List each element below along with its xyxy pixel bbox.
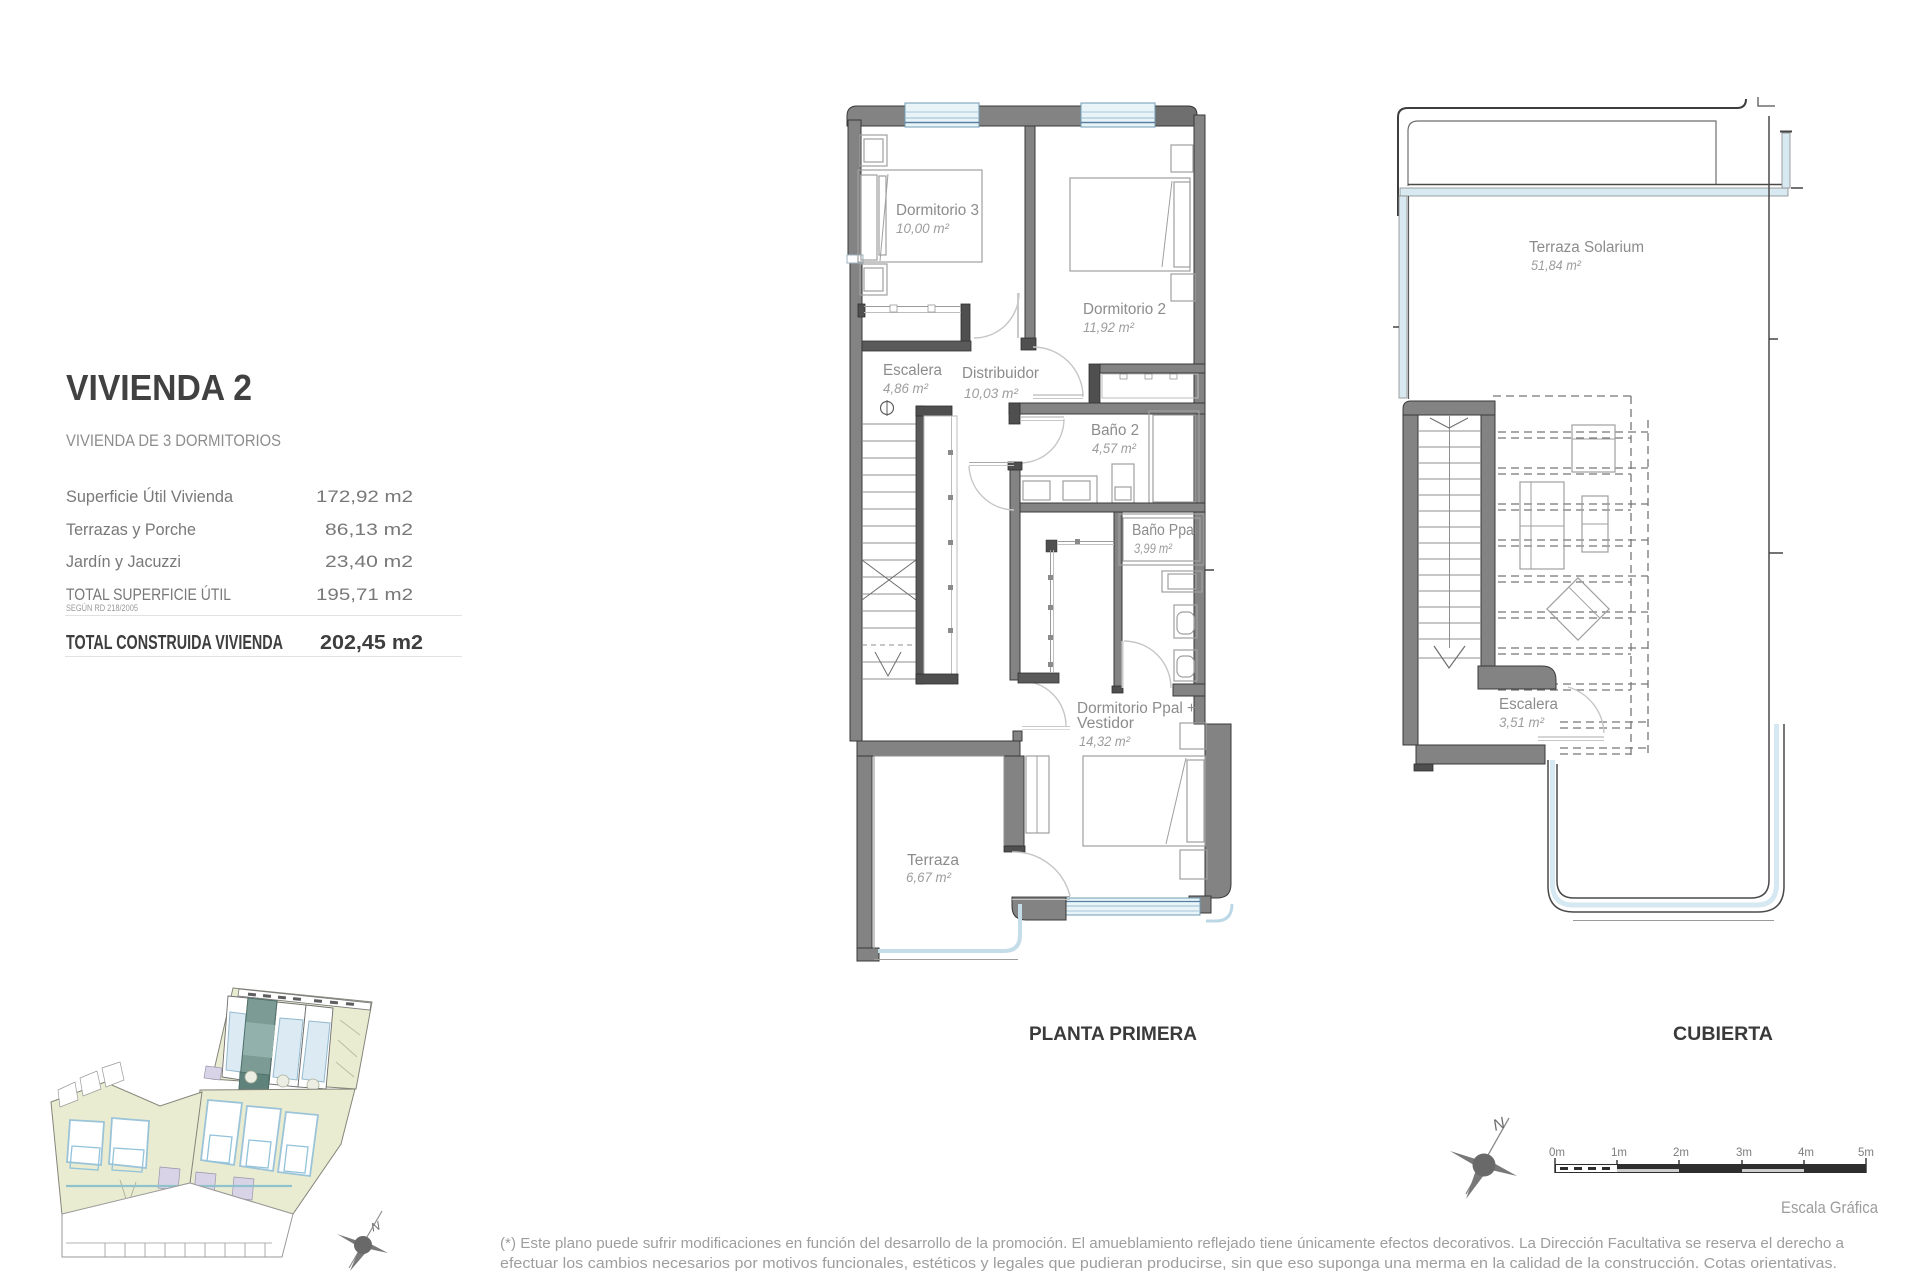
svg-text:TOTAL CONSTRUIDA VIVIENDA: TOTAL CONSTRUIDA VIVIENDA [66, 632, 283, 654]
svg-text:4,57 m²: 4,57 m² [1092, 440, 1137, 456]
svg-text:efectuar los cambios necesario: efectuar los cambios necesarios por moti… [500, 1255, 1837, 1272]
svg-text:Terraza Solarium: Terraza Solarium [1529, 239, 1644, 256]
svg-text:86,13 m2: 86,13 m2 [325, 520, 413, 539]
svg-text:SEGÚN RD 218/2005: SEGÚN RD 218/2005 [66, 603, 138, 614]
svg-text:51,84 m²: 51,84 m² [1531, 257, 1582, 273]
svg-text:4m: 4m [1798, 1147, 1814, 1159]
svg-text:Superficie Útil Vivienda: Superficie Útil Vivienda [66, 487, 234, 506]
svg-text:Distribuidor: Distribuidor [962, 365, 1039, 382]
svg-text:3,99 m²: 3,99 m² [1134, 540, 1173, 556]
svg-text:VIVIENDA 2: VIVIENDA 2 [66, 367, 252, 408]
svg-text:Dormitorio 3: Dormitorio 3 [896, 202, 979, 219]
svg-text:2m: 2m [1673, 1147, 1689, 1159]
svg-text:Baño 2: Baño 2 [1091, 422, 1139, 439]
svg-text:14,32 m²: 14,32 m² [1079, 733, 1131, 749]
svg-text:Escalera: Escalera [1499, 696, 1558, 713]
svg-text:Terraza: Terraza [907, 852, 959, 869]
svg-text:4,86 m²: 4,86 m² [883, 380, 929, 396]
svg-text:Vestidor: Vestidor [1077, 715, 1134, 732]
svg-text:Escala Gráfica: Escala Gráfica [1781, 1199, 1879, 1217]
svg-text:Jardín y Jacuzzi: Jardín y Jacuzzi [66, 552, 181, 571]
svg-text:Terrazas y Porche: Terrazas y Porche [66, 520, 196, 539]
svg-text:195,71 m2: 195,71 m2 [316, 585, 413, 604]
svg-text:PLANTA PRIMERA: PLANTA PRIMERA [1029, 1024, 1197, 1045]
svg-text:172,92 m2: 172,92 m2 [316, 487, 413, 506]
svg-text:11,92 m²: 11,92 m² [1083, 319, 1135, 335]
svg-text:3,51 m²: 3,51 m² [1499, 714, 1545, 730]
svg-text:0m: 0m [1549, 1147, 1565, 1159]
svg-text:202,45 m2: 202,45 m2 [320, 632, 423, 654]
svg-text:(*) Este plano puede sufrir mo: (*) Este plano puede sufrir modificacion… [500, 1235, 1845, 1252]
svg-text:CUBIERTA: CUBIERTA [1673, 1024, 1773, 1045]
svg-text:23,40 m2: 23,40 m2 [325, 552, 413, 571]
svg-text:VIVIENDA DE 3 DORMITORIOS: VIVIENDA DE 3 DORMITORIOS [66, 431, 281, 450]
svg-text:10,00 m²: 10,00 m² [896, 220, 950, 236]
svg-text:Dormitorio 2: Dormitorio 2 [1083, 301, 1166, 318]
svg-text:Baño Ppal: Baño Ppal [1132, 522, 1197, 539]
svg-text:5m: 5m [1858, 1147, 1874, 1159]
svg-text:3m: 3m [1736, 1147, 1752, 1159]
svg-text:1m: 1m [1611, 1147, 1627, 1159]
svg-text:6,67 m²: 6,67 m² [906, 869, 952, 885]
svg-text:TOTAL SUPERFICIE ÚTIL: TOTAL SUPERFICIE ÚTIL [66, 585, 231, 604]
svg-text:10,03 m²: 10,03 m² [964, 385, 1019, 401]
svg-text:Escalera: Escalera [883, 362, 942, 379]
